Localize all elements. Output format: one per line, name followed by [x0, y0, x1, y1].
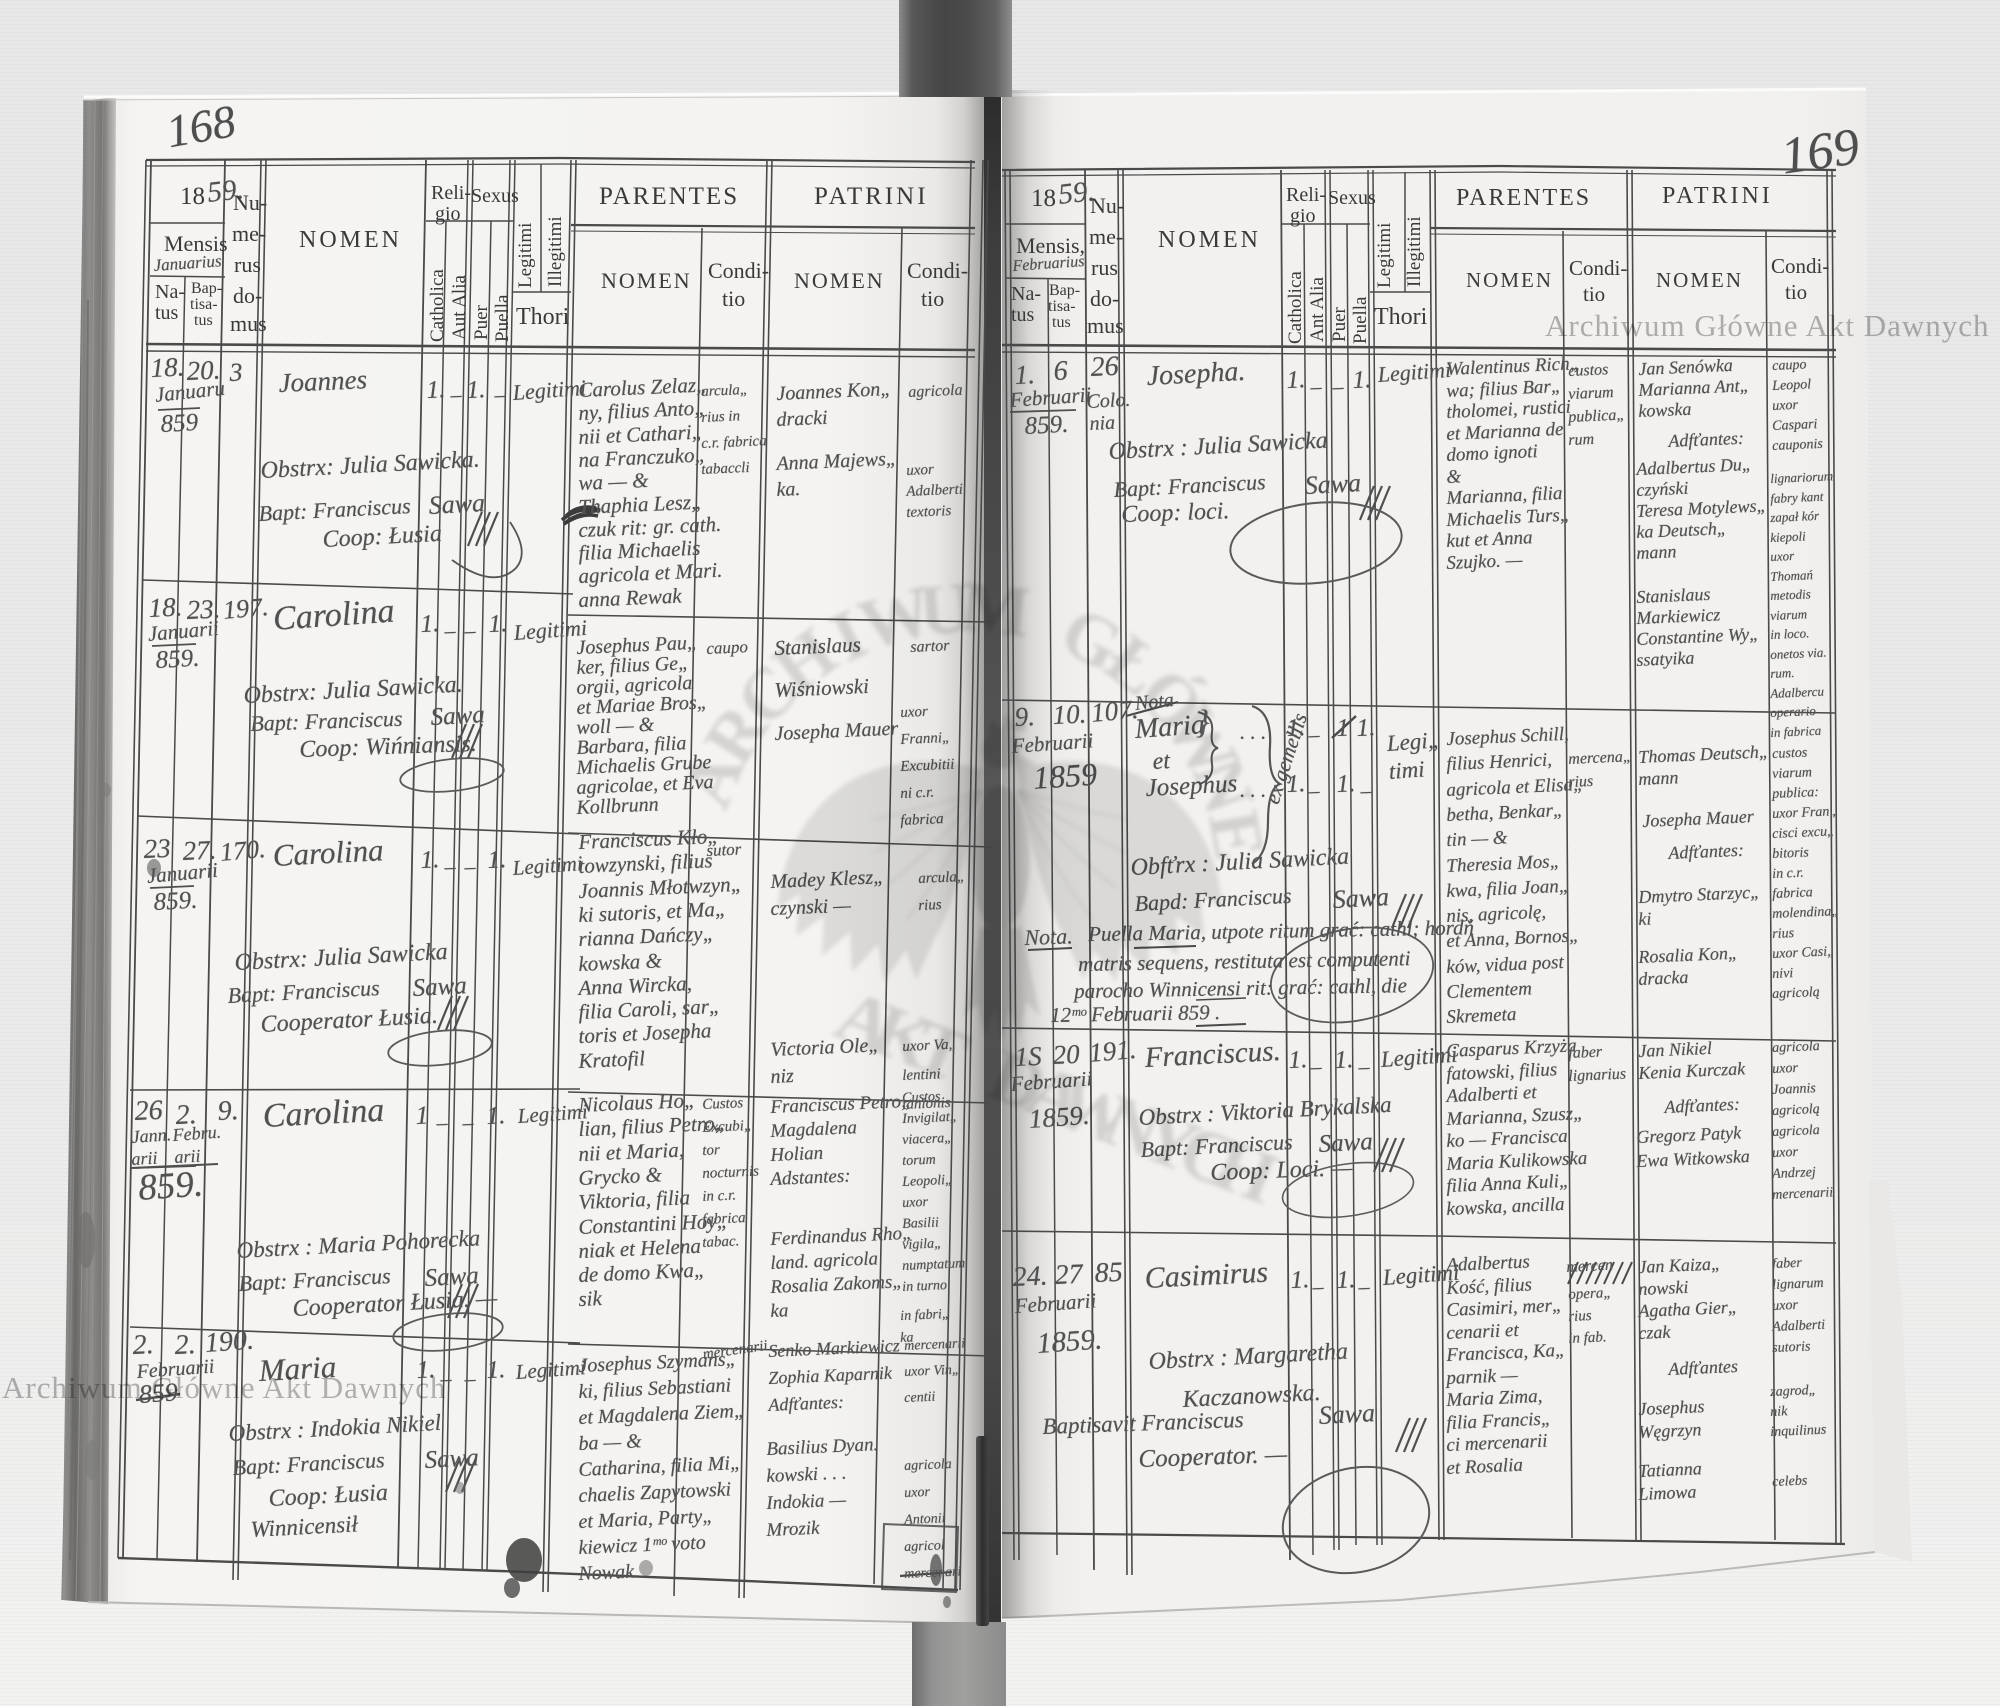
- svg-text:M: M: [958, 566, 1034, 653]
